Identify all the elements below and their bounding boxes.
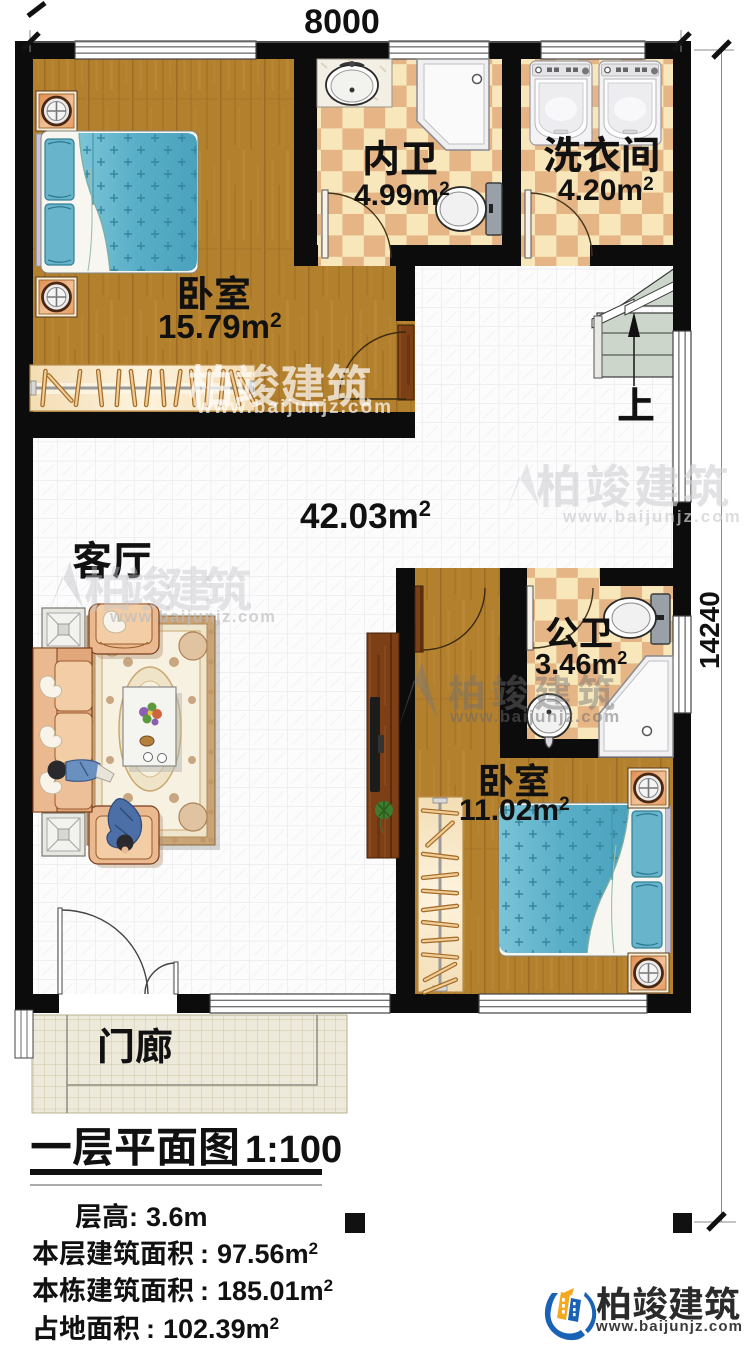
svg-text::: : xyxy=(200,1239,209,1269)
svg-text:14240: 14240 xyxy=(694,591,725,669)
svg-text:42.03m2: 42.03m2 xyxy=(300,496,431,536)
svg-text:www.baijunjz.com: www.baijunjz.com xyxy=(562,507,742,526)
svg-text:4.20m2: 4.20m2 xyxy=(558,174,654,207)
svg-text:97.56m2: 97.56m2 xyxy=(217,1239,318,1269)
svg-text:8000: 8000 xyxy=(304,3,380,41)
svg-text::: : xyxy=(129,1202,138,1232)
svg-text:185.01m2: 185.01m2 xyxy=(217,1276,333,1306)
svg-text:15.79m2: 15.79m2 xyxy=(158,308,282,345)
svg-text:www.baijunjz.com: www.baijunjz.com xyxy=(196,397,393,418)
svg-text:www.baijunjz.com: www.baijunjz.com xyxy=(595,1318,743,1335)
svg-text:1:100: 1:100 xyxy=(245,1129,342,1171)
svg-text:11.02m2: 11.02m2 xyxy=(459,794,570,827)
svg-text::: : xyxy=(200,1276,209,1306)
svg-text::: : xyxy=(146,1314,155,1344)
svg-text:3.6m: 3.6m xyxy=(146,1202,208,1232)
svg-text:4.99m2: 4.99m2 xyxy=(354,179,450,212)
svg-text:www.baijunjz.com: www.baijunjz.com xyxy=(109,608,276,626)
svg-text:www.baijunjz.com: www.baijunjz.com xyxy=(449,707,621,726)
svg-text:102.39m2: 102.39m2 xyxy=(163,1314,279,1344)
svg-text:3.46m2: 3.46m2 xyxy=(535,648,627,681)
